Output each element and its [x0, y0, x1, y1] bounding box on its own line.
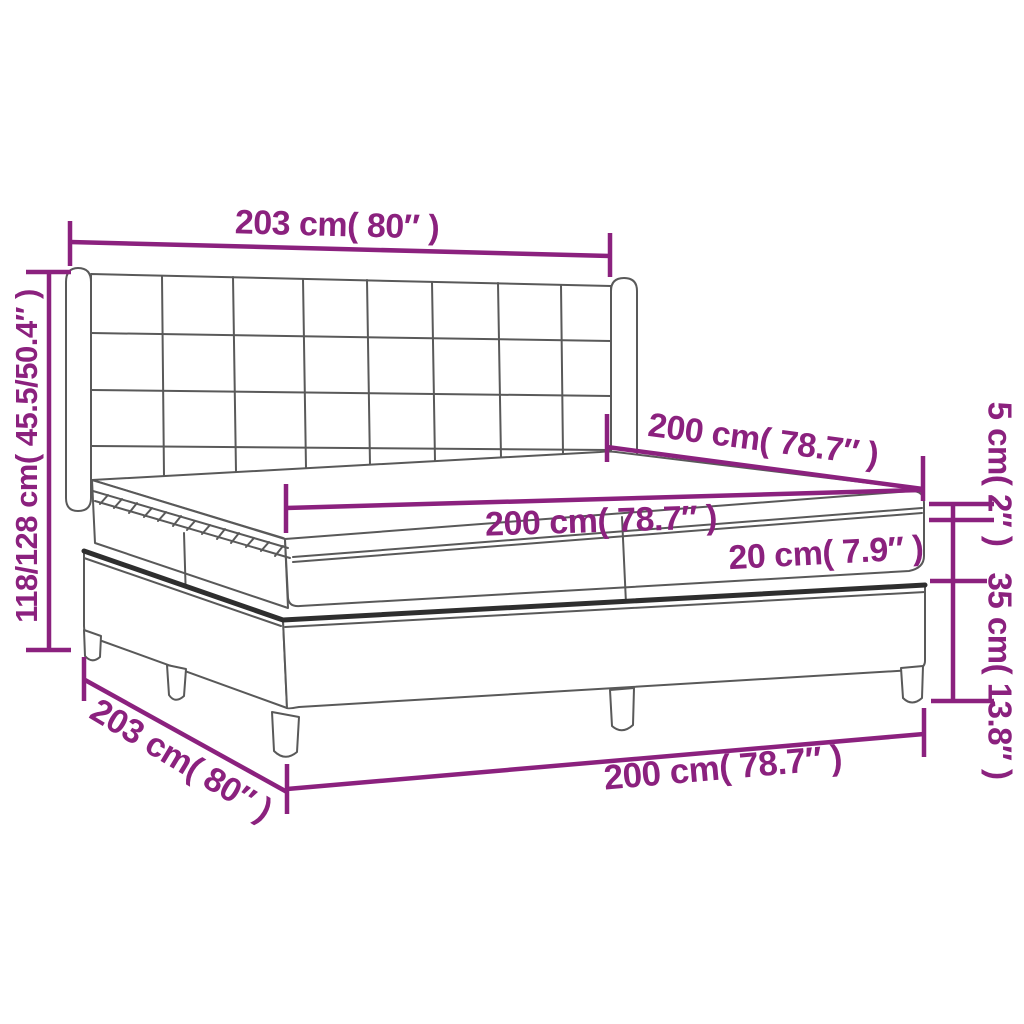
label-frame-depth: 203 cm( 80″ )	[84, 691, 279, 829]
bed-leg	[610, 688, 634, 730]
bed-leg	[272, 712, 299, 757]
bed-dimension-diagram: 203 cm( 80″ ) 118/128 cm( 45.5/50.4″ ) 2…	[0, 0, 1024, 1024]
bed-leg	[901, 666, 923, 703]
label-topper-thickness: 5 cm( 2″ )	[981, 402, 1018, 547]
headboard-right-wing	[611, 278, 637, 468]
label-frame-width: 200 cm( 78.7″ )	[602, 738, 843, 798]
label-base-height: 35 cm( 13.8″ )	[981, 573, 1018, 780]
bed-leg	[84, 630, 101, 660]
label-headboard-width: 203 cm( 80″ )	[234, 203, 439, 246]
headboard-panel	[91, 274, 611, 483]
headboard-left-wing	[66, 268, 91, 511]
diagram-canvas: 203 cm( 80″ ) 118/128 cm( 45.5/50.4″ ) 2…	[0, 0, 1024, 1024]
label-mattress-width: 200 cm( 78.7″ )	[484, 498, 717, 543]
bed-leg	[167, 665, 186, 700]
label-total-height: 118/128 cm( 45.5/50.4″ )	[9, 289, 44, 623]
